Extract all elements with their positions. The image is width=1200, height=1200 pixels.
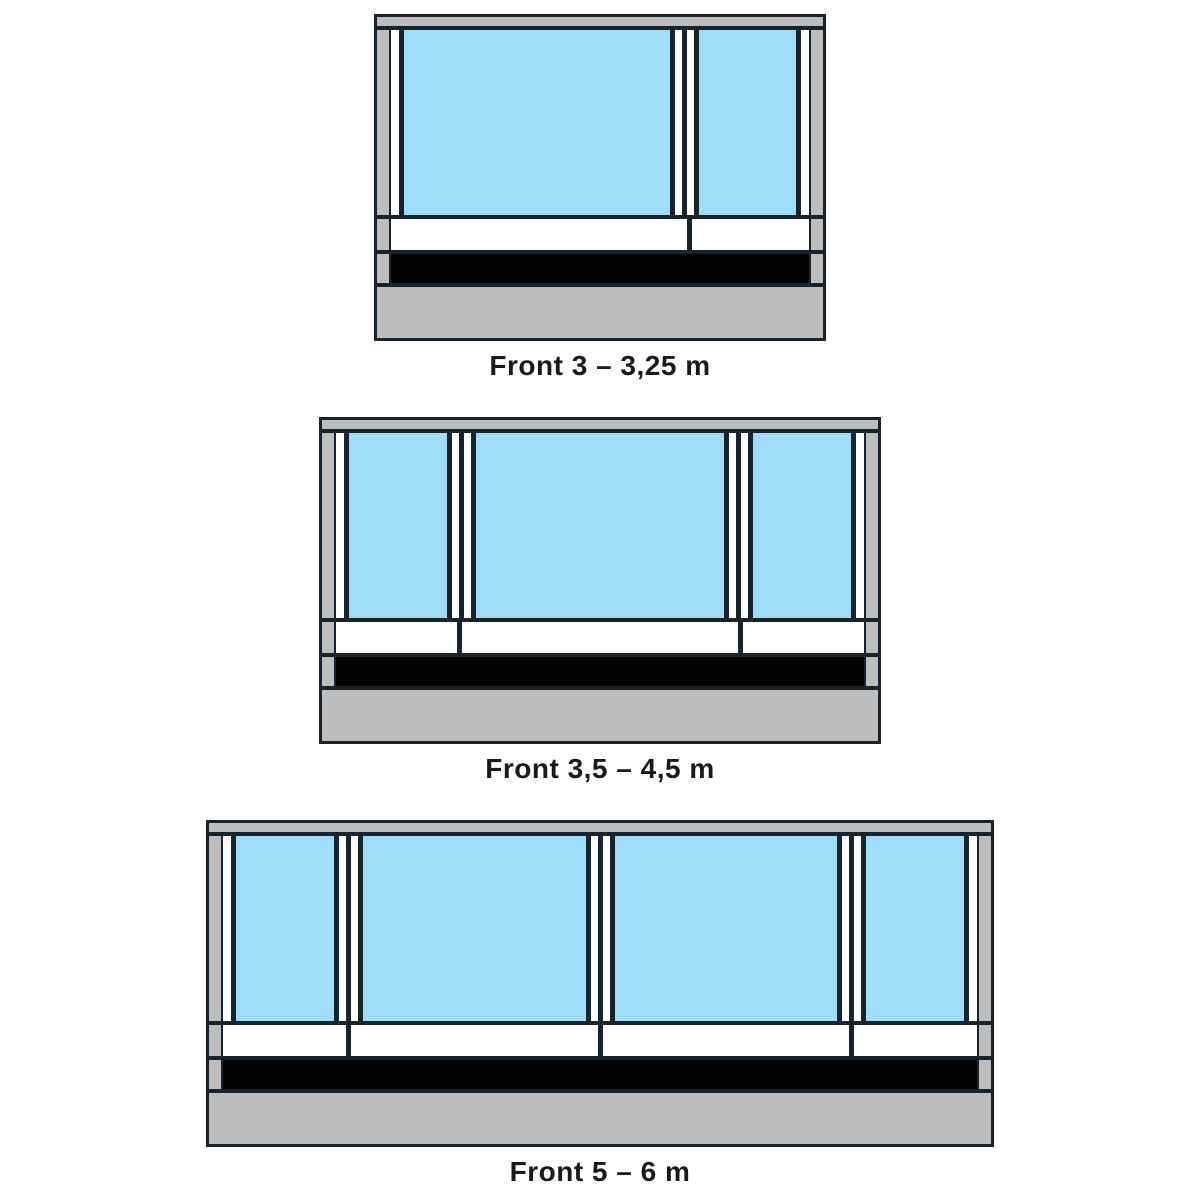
mullion-white-strip — [842, 836, 849, 1021]
sill-panel — [336, 622, 457, 653]
right-frame-post — [864, 433, 878, 618]
left-frame-post — [322, 622, 336, 653]
mullion-white-strip — [675, 30, 682, 215]
base-panel — [209, 1093, 991, 1144]
right-frame-post — [809, 30, 823, 215]
left-frame-post — [377, 30, 391, 215]
sill-panel — [854, 1025, 977, 1056]
right-corner-block — [809, 254, 823, 283]
sill-panel — [391, 219, 687, 250]
black-skirt-band — [223, 1060, 977, 1089]
mullion — [842, 836, 861, 1021]
right-frame-post — [977, 1025, 991, 1056]
right-corner-block — [864, 657, 878, 686]
window-row — [209, 836, 991, 1025]
awning-front-diagram-medium — [319, 417, 881, 744]
left-frame-post — [209, 1025, 223, 1056]
sill-panel — [351, 1025, 598, 1056]
mullion-white-strip — [591, 836, 598, 1021]
figure-front-5-6: Front 5 – 6 m — [206, 820, 994, 1186]
window-pane-small — [748, 433, 856, 618]
black-skirt-band — [336, 657, 864, 686]
left-corner-block — [209, 1060, 223, 1089]
white-trim-strip — [969, 836, 977, 1021]
mullion-white-strip — [452, 433, 459, 618]
skirt-row — [209, 1060, 991, 1093]
white-trim-strip — [391, 30, 399, 215]
sill-panel — [223, 1025, 346, 1056]
window-pane-large — [358, 836, 591, 1021]
left-frame-post — [377, 219, 391, 250]
window-row — [322, 433, 878, 622]
mullion-white-strip — [339, 836, 346, 1021]
mullion-white-strip — [729, 433, 736, 618]
mullion — [339, 836, 358, 1021]
window-row — [377, 30, 823, 219]
window-pane-small — [231, 836, 339, 1021]
diagram-label: Front 5 – 6 m — [510, 1158, 691, 1186]
sill-row — [209, 1025, 991, 1060]
sill-panel — [692, 219, 809, 250]
white-trim-strip — [223, 836, 231, 1021]
mullion-white-strip — [854, 836, 861, 1021]
sill-panel — [743, 622, 864, 653]
window-pane-large — [610, 836, 843, 1021]
page: Front 3 – 3,25 m — [0, 0, 1200, 1200]
window-pane-small — [861, 836, 969, 1021]
sill-panel — [603, 1025, 850, 1056]
diagram-label: Front 3,5 – 4,5 m — [485, 755, 714, 783]
skirt-row — [377, 254, 823, 287]
white-trim-strip — [336, 433, 344, 618]
mullion — [729, 433, 748, 618]
top-rail — [209, 823, 991, 836]
left-frame-post — [322, 433, 336, 618]
awning-front-diagram-small — [374, 14, 826, 341]
mullion — [675, 30, 694, 215]
left-corner-block — [322, 657, 336, 686]
sill-panel — [462, 622, 737, 653]
mullion-white-strip — [603, 836, 610, 1021]
mullion-white-strip — [464, 433, 471, 618]
window-pane-large — [471, 433, 729, 618]
window-pane-large — [399, 30, 675, 215]
sill-row — [377, 219, 823, 254]
figure-front-35-45: Front 3,5 – 4,5 m — [319, 417, 881, 820]
white-trim-strip — [801, 30, 809, 215]
top-rail — [322, 420, 878, 433]
white-trim-strip — [856, 433, 864, 618]
mullion — [452, 433, 471, 618]
mullion-white-strip — [687, 30, 694, 215]
left-corner-block — [377, 254, 391, 283]
diagram-label: Front 3 – 3,25 m — [489, 352, 710, 380]
mullion-white-strip — [351, 836, 358, 1021]
window-pane-small — [694, 30, 801, 215]
base-panel — [377, 287, 823, 338]
sill-row — [322, 622, 878, 657]
window-pane-small — [344, 433, 452, 618]
right-corner-block — [977, 1060, 991, 1089]
mullion-white-strip — [741, 433, 748, 618]
black-skirt-band — [391, 254, 809, 283]
figure-front-3-325: Front 3 – 3,25 m — [374, 14, 826, 417]
left-frame-post — [209, 836, 223, 1021]
skirt-row — [322, 657, 878, 690]
right-frame-post — [864, 622, 878, 653]
base-panel — [322, 690, 878, 741]
awning-front-diagram-large — [206, 820, 994, 1147]
right-frame-post — [977, 836, 991, 1021]
mullion — [591, 836, 610, 1021]
top-rail — [377, 17, 823, 30]
right-frame-post — [809, 219, 823, 250]
